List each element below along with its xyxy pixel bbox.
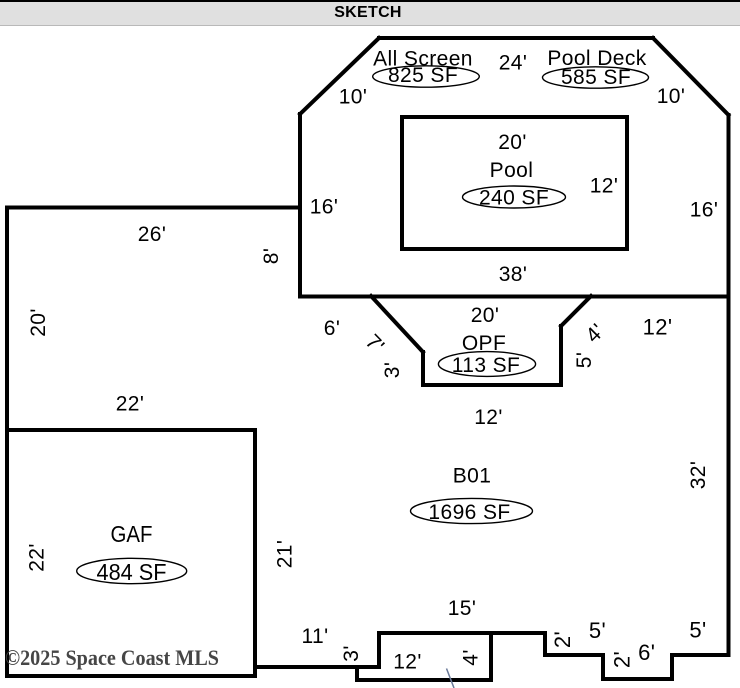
- svg-text:22': 22': [26, 543, 49, 572]
- svg-text:38': 38': [499, 263, 528, 286]
- svg-text:8': 8': [260, 248, 283, 265]
- svg-text:10': 10': [657, 85, 686, 108]
- svg-text:11': 11': [301, 625, 328, 648]
- svg-text:20': 20': [498, 131, 527, 154]
- svg-text:3': 3': [340, 645, 363, 662]
- svg-text:240 SF: 240 SF: [479, 187, 549, 210]
- svg-text:1696 SF: 1696 SF: [428, 501, 510, 524]
- svg-text:2': 2': [610, 651, 635, 668]
- svg-text:5': 5': [573, 352, 596, 369]
- svg-text:2': 2': [550, 631, 575, 648]
- svg-text:22': 22': [116, 393, 145, 416]
- svg-text:©2025 Space Coast MLS: ©2025 Space Coast MLS: [5, 645, 219, 670]
- svg-text:5': 5': [689, 618, 706, 643]
- svg-text:20': 20': [471, 304, 500, 327]
- svg-text:20': 20': [27, 308, 50, 337]
- svg-text:12': 12': [643, 315, 673, 340]
- svg-text:10': 10': [339, 86, 368, 109]
- svg-text:26': 26': [138, 223, 167, 246]
- svg-text:24': 24': [499, 52, 528, 75]
- svg-text:5': 5': [589, 618, 606, 643]
- svg-text:Pool: Pool: [490, 159, 534, 182]
- svg-text:12': 12': [474, 406, 503, 429]
- svg-text:21': 21': [274, 540, 297, 569]
- svg-text:15': 15': [448, 597, 477, 620]
- svg-text:6': 6': [324, 317, 341, 340]
- svg-text:484 SF: 484 SF: [97, 559, 167, 585]
- svg-text:12': 12': [393, 651, 422, 674]
- svg-text:SKETCH: SKETCH: [334, 4, 402, 21]
- svg-text:32': 32': [687, 461, 710, 490]
- svg-text:16': 16': [310, 196, 339, 219]
- svg-text:3': 3': [381, 362, 404, 379]
- svg-text:113 SF: 113 SF: [452, 354, 521, 377]
- svg-text:6': 6': [638, 640, 655, 665]
- svg-text:GAF: GAF: [111, 521, 153, 547]
- svg-text:4': 4': [460, 649, 483, 666]
- svg-text:825 SF: 825 SF: [388, 64, 458, 87]
- svg-text:12': 12': [590, 175, 619, 198]
- svg-text:585 SF: 585 SF: [561, 66, 631, 89]
- svg-text:16': 16': [690, 199, 719, 222]
- svg-text:B01: B01: [453, 465, 492, 488]
